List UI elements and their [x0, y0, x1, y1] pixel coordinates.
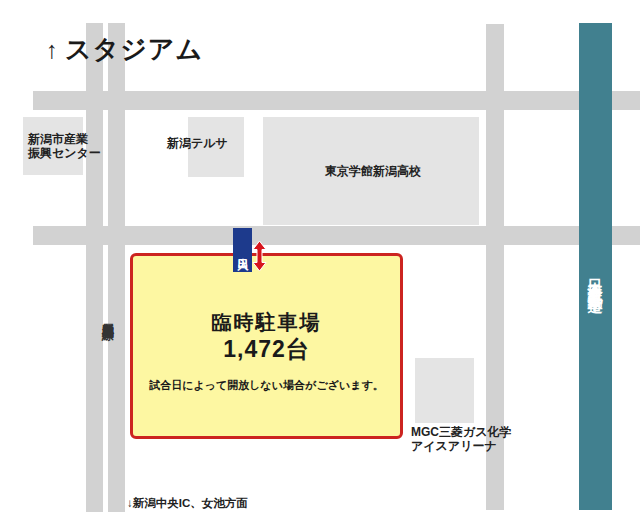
gate-badge: 出入口 [233, 228, 252, 272]
parking-map: 日本海東北自動車道 ↑スタジアム 新潟市産業 振興センター 新潟テルサ 東京学館… [0, 0, 640, 530]
industry-center-label-line1: 新潟市産業 [28, 132, 101, 146]
ice-arena-label-line1: MGC三菱ガス化学 [411, 425, 512, 439]
building-ice-arena [415, 358, 474, 423]
expressway-label: 日本海東北自動車道 [579, 193, 612, 363]
parking-capacity: 1,472台 [130, 334, 403, 365]
road-horizontal-top [33, 91, 640, 110]
terrsa-label: 新潟テルサ [167, 136, 228, 150]
up-arrow-icon: ↑ [46, 36, 59, 63]
page-title: ↑スタジアム [46, 32, 203, 67]
stadium-title-text: スタジアム [65, 34, 203, 64]
ice-arena-label: MGC三菱ガス化学 アイスアリーナ [411, 425, 512, 453]
industry-center-label-line2: 振興センター [28, 146, 101, 160]
parking-note: 試合日によって開放しない場合がございます。 [130, 378, 403, 393]
toyanogata-park-line-label: 鳥屋野潟公園線 [96, 266, 120, 366]
bottom-direction-label: ↓新潟中央IC、女池方面 [127, 496, 248, 511]
parking-name: 臨時駐車場 [130, 309, 403, 336]
road-horizontal-middle [33, 226, 640, 245]
gate-badge-label: 出入口 [233, 249, 252, 252]
high-school-label: 東京学館新潟高校 [325, 164, 421, 178]
industry-center-label: 新潟市産業 振興センター [28, 132, 101, 160]
ice-arena-label-line2: アイスアリーナ [411, 439, 512, 453]
double-arrow-icon [252, 241, 267, 271]
